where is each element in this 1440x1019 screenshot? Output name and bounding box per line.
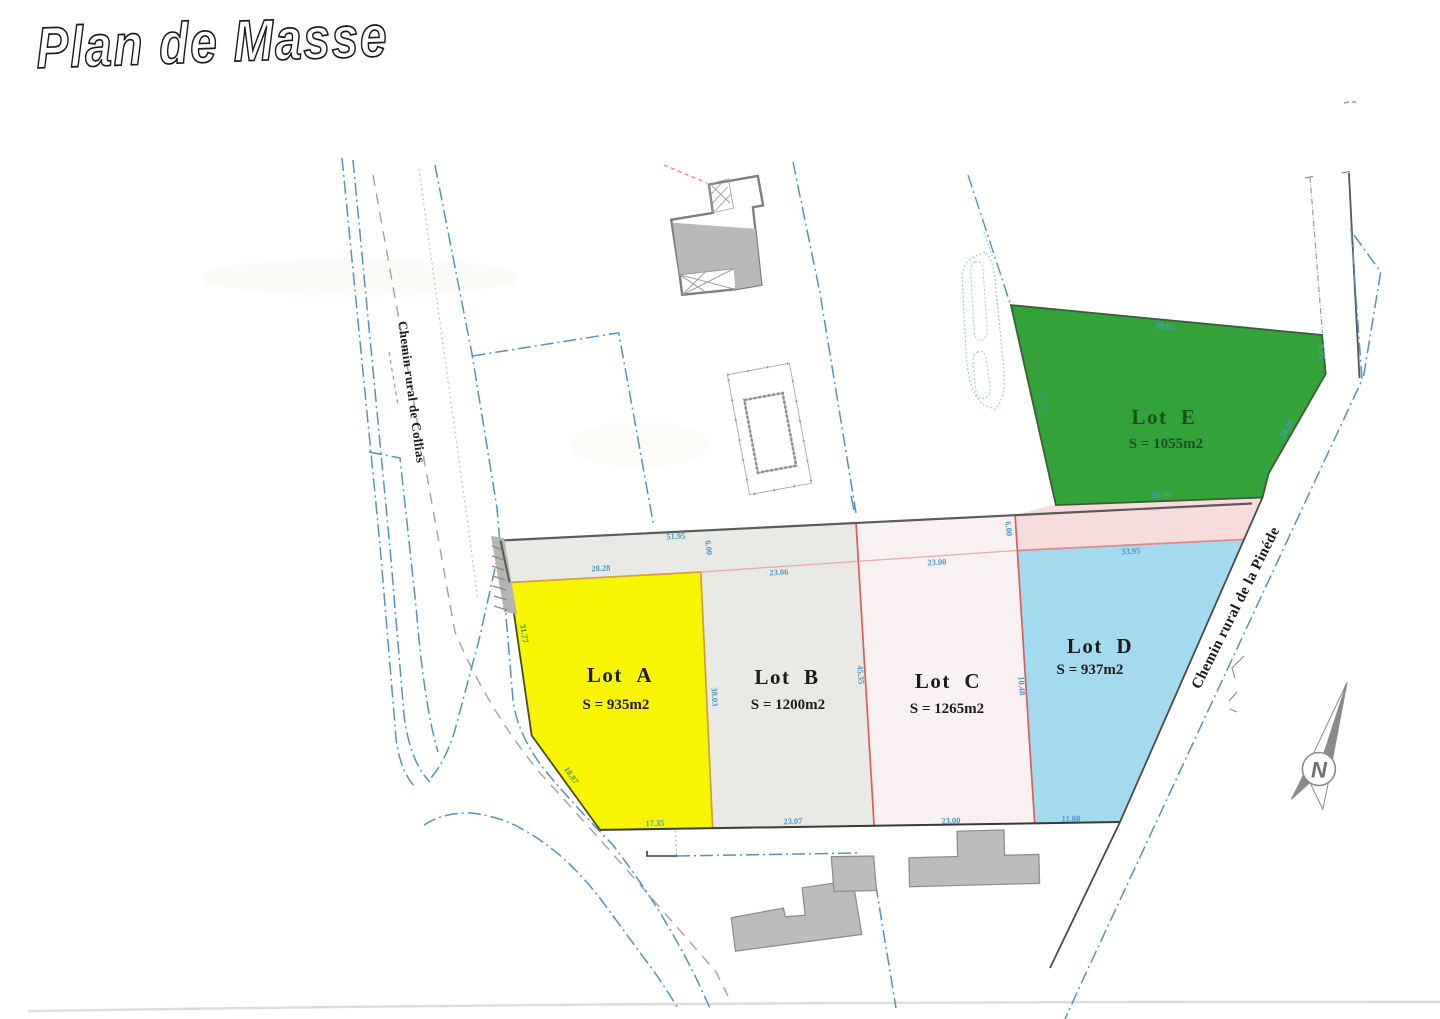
svg-text:Lot B: Lot B [754,665,819,689]
svg-text:Lot A: Lot A [587,663,653,687]
svg-text:10.48: 10.48 [1016,676,1027,696]
svg-text:9.75: 9.75 [1316,344,1327,360]
svg-text:23.00: 23.00 [927,557,947,568]
svg-text:Lot E: Lot E [1131,405,1196,429]
svg-text:38.03: 38.03 [710,687,721,707]
svg-text:6.00: 6.00 [703,540,715,556]
svg-text:33.95: 33.95 [1121,546,1141,557]
svg-text:36.00: 36.00 [1152,489,1172,500]
svg-text:S = 1055m2: S = 1055m2 [1129,436,1203,452]
svg-text:11.88: 11.88 [1062,813,1081,823]
svg-text:51.95: 51.95 [666,531,686,542]
svg-text:Lot D: Lot D [1067,634,1133,658]
svg-text:45.35: 45.35 [855,665,866,685]
svg-text:N: N [1311,758,1328,783]
svg-text:23.07: 23.07 [783,816,803,827]
svg-text:6.00: 6.00 [1003,521,1015,537]
svg-text:S = 935m2: S = 935m2 [583,697,650,713]
svg-text:S = 937m2: S = 937m2 [1057,662,1124,678]
svg-text:40.03: 40.03 [1155,320,1175,332]
svg-text:Plan de Masse: Plan de Masse [35,4,389,81]
svg-text:23.06: 23.06 [769,567,789,578]
svg-text:S = 1265m2: S = 1265m2 [910,701,984,717]
svg-text:Lot C: Lot C [915,669,981,693]
svg-text:S = 1200m2: S = 1200m2 [751,697,825,713]
svg-text:28.28: 28.28 [591,563,611,574]
svg-text:17.35: 17.35 [645,818,664,829]
svg-text:23.00: 23.00 [941,815,960,826]
